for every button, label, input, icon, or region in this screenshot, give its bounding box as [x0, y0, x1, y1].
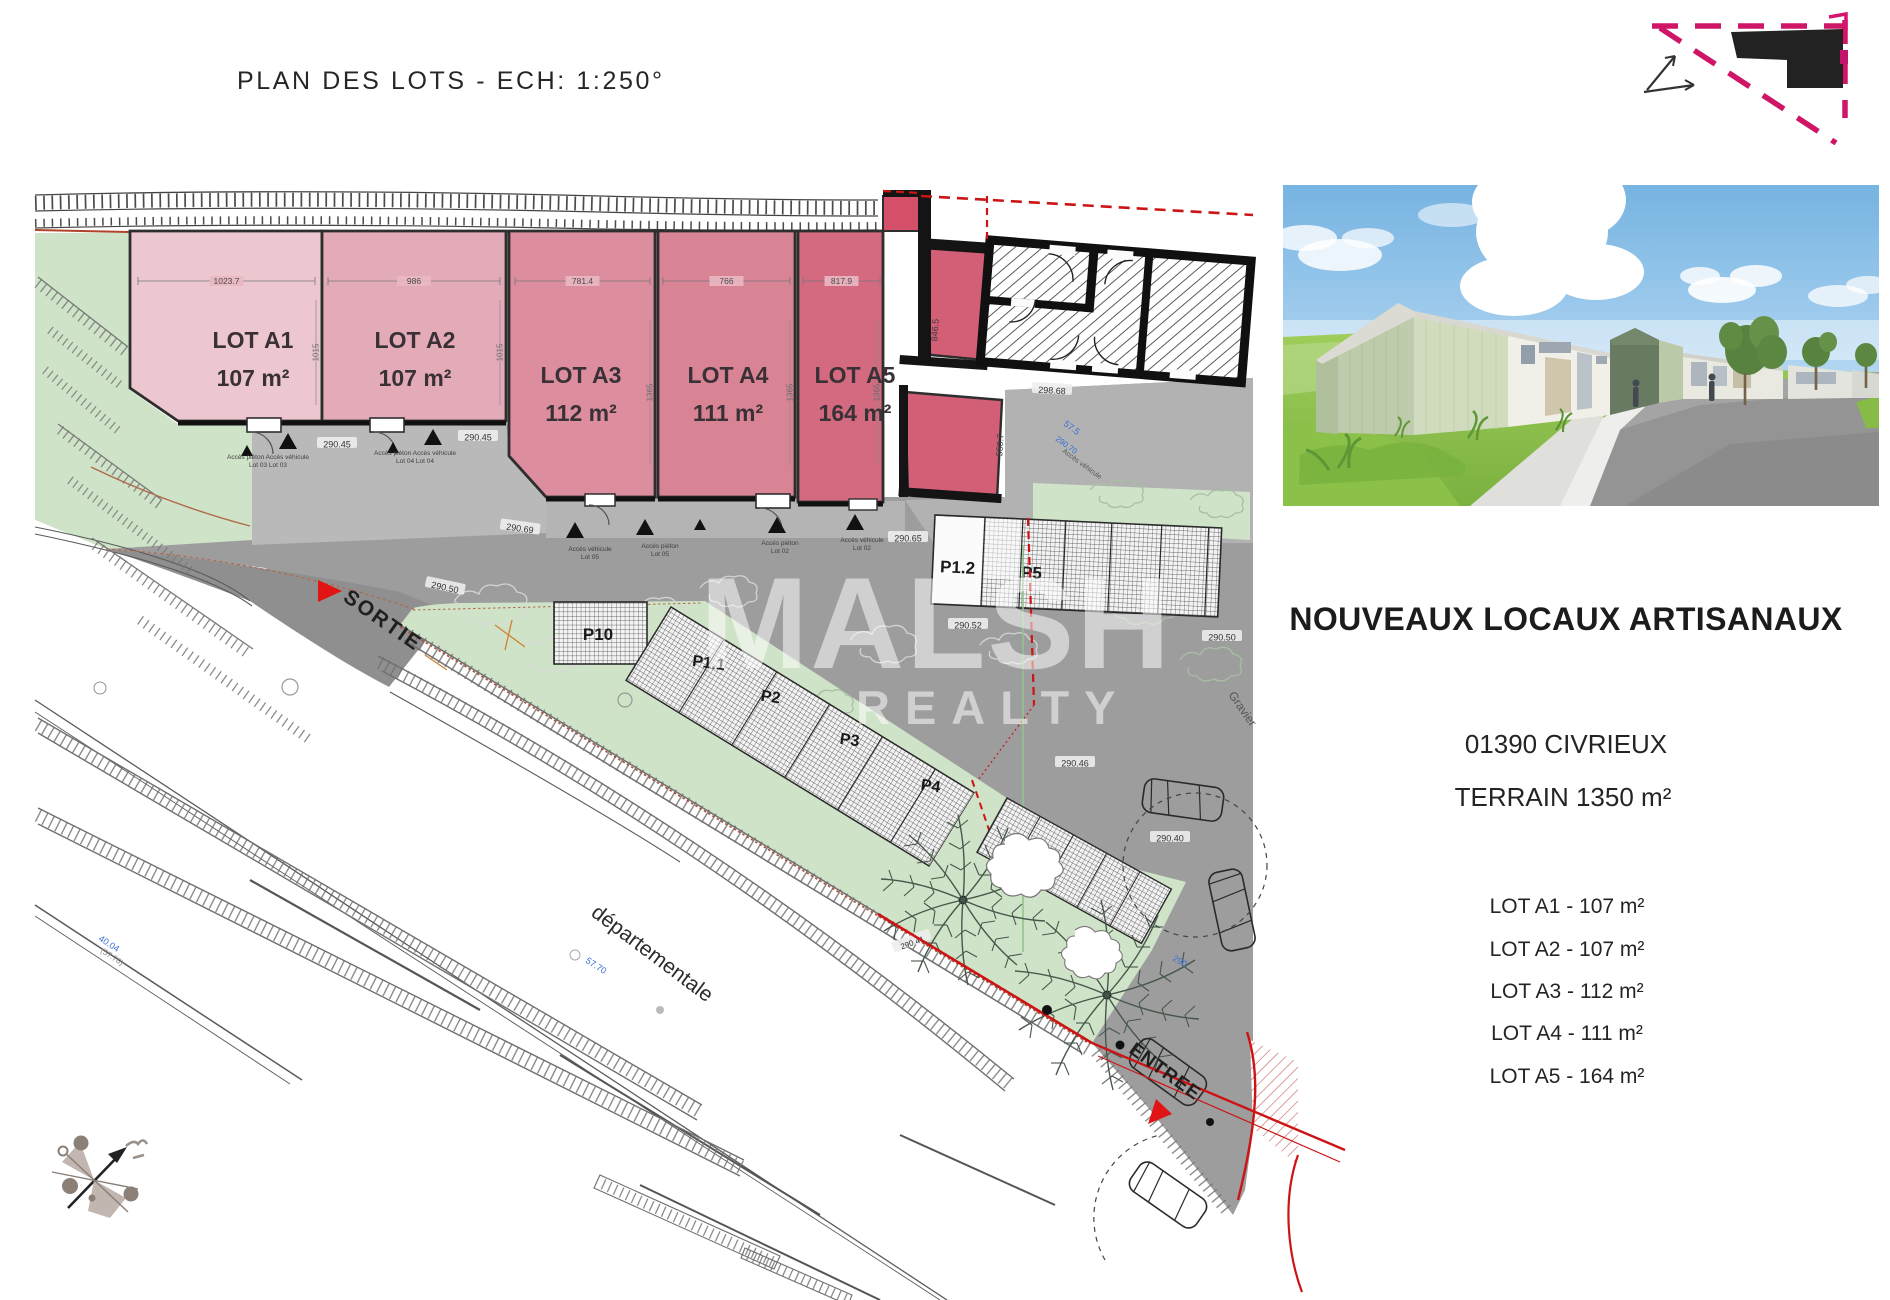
svg-text:1015: 1015 [496, 343, 505, 361]
svg-text:290.65: 290.65 [894, 534, 922, 544]
svg-text:Accès véhicule: Accès véhicule [840, 537, 884, 544]
svg-text:290.45: 290.45 [464, 433, 492, 443]
svg-text:290.45: 290.45 [323, 440, 351, 450]
svg-text:Lot 03 Lot 03: Lot 03 Lot 03 [249, 462, 287, 469]
svg-text:LOT A2: LOT A2 [375, 327, 456, 353]
svg-text:112 m²: 112 m² [545, 400, 617, 426]
svg-text:LOT A1 - 107 m²: LOT A1 - 107 m² [1490, 895, 1645, 918]
svg-text:P4: P4 [920, 777, 942, 797]
svg-text:NOUVEAUX LOCAUX ARTISANAUX: NOUVEAUX LOCAUX ARTISANAUX [1289, 601, 1842, 637]
svg-text:290.40: 290.40 [1156, 834, 1184, 844]
svg-text:LOT A1: LOT A1 [213, 327, 294, 353]
svg-text:766: 766 [719, 276, 733, 286]
svg-text:P10: P10 [583, 625, 613, 644]
svg-text:Accès véhicule: Accès véhicule [568, 546, 612, 553]
svg-text:Accès piéton: Accès piéton [761, 540, 799, 547]
svg-text:290.50: 290.50 [1208, 633, 1236, 643]
svg-text:Lot 05: Lot 05 [581, 554, 599, 561]
svg-text:1365: 1365 [646, 383, 655, 401]
svg-text:1365: 1365 [786, 383, 795, 401]
svg-text:1023.7: 1023.7 [214, 276, 240, 286]
svg-text:817.9: 817.9 [831, 276, 853, 286]
svg-text:1015: 1015 [312, 343, 321, 361]
svg-text:LOT A5 - 164 m²: LOT A5 - 164 m² [1490, 1065, 1645, 1088]
svg-text:298.68: 298.68 [1038, 385, 1066, 396]
svg-text:LOT A3: LOT A3 [541, 362, 622, 388]
svg-text:MALSH: MALSH [700, 550, 1172, 696]
svg-text:LOT A4: LOT A4 [688, 362, 769, 388]
svg-text:107 m²: 107 m² [217, 365, 290, 391]
svg-text:Accès piéton Accès véhicule: Accès piéton Accès véhicule [227, 454, 309, 461]
svg-text:Lot 04 Lot 04: Lot 04 Lot 04 [396, 458, 434, 465]
svg-text:LOT A5: LOT A5 [815, 362, 896, 388]
svg-text:986: 986 [407, 276, 421, 286]
svg-text:111 m²: 111 m² [693, 400, 764, 426]
svg-text:Lot 05: Lot 05 [651, 551, 669, 558]
svg-text:846.5: 846.5 [929, 318, 941, 341]
svg-text:01390 CIVRIEUX: 01390 CIVRIEUX [1465, 729, 1667, 759]
svg-text:Accès piéton Accès véhicule: Accès piéton Accès véhicule [374, 450, 456, 457]
svg-text:290.46: 290.46 [1061, 759, 1089, 769]
svg-text:781.4: 781.4 [572, 276, 594, 286]
svg-text:LOT A3 - 112 m²: LOT A3 - 112 m² [1490, 980, 1643, 1003]
svg-text:REALTY: REALTY [856, 681, 1131, 734]
svg-text:PLAN DES LOTS - ECH: 1:250°: PLAN DES LOTS - ECH: 1:250° [237, 67, 665, 95]
svg-text:550.7: 550.7 [994, 433, 1006, 456]
svg-text:TERRAIN 1350 m²: TERRAIN 1350 m² [1455, 782, 1672, 812]
svg-text:164 m²: 164 m² [819, 400, 892, 426]
svg-text:Accès piéton: Accès piéton [641, 543, 679, 550]
svg-text:LOT A4 - 111 m²: LOT A4 - 111 m² [1491, 1022, 1643, 1045]
svg-text:LOT A2 - 107 m²: LOT A2 - 107 m² [1490, 938, 1645, 961]
svg-text:107 m²: 107 m² [379, 365, 452, 391]
